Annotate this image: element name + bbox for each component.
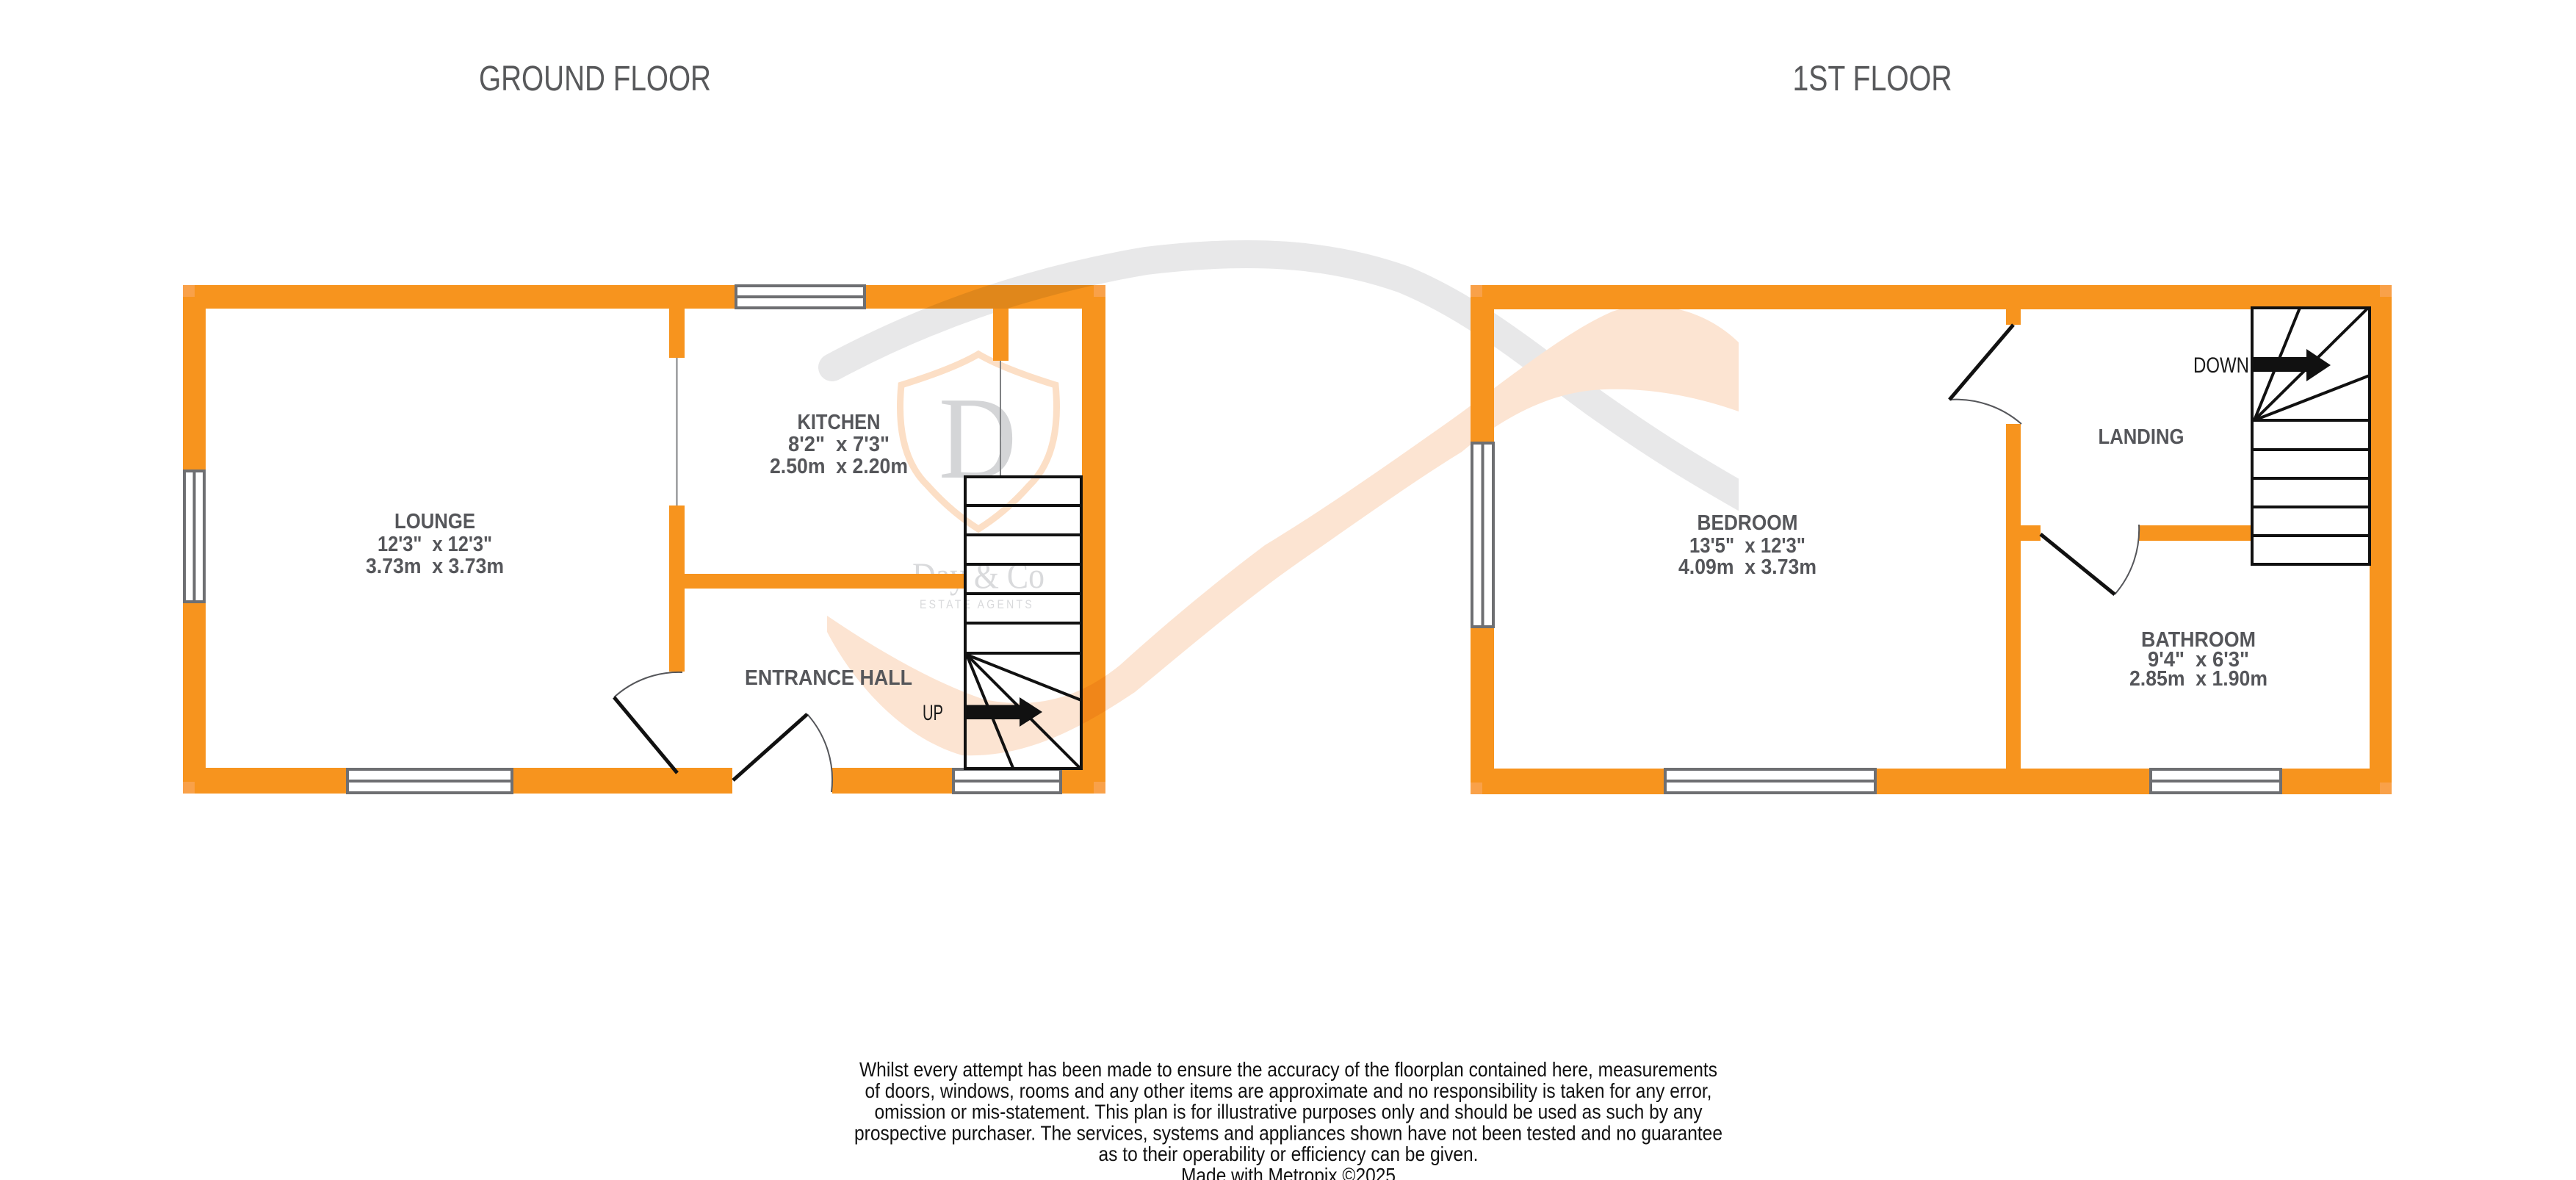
- svg-text:1ST FLOOR: 1ST FLOOR: [1793, 60, 1952, 98]
- svg-text:8'2" x 7'3": 8'2" x 7'3": [788, 433, 890, 456]
- svg-text:13'5" x 12'3": 13'5" x 12'3": [1689, 534, 1805, 558]
- svg-text:ENTRANCE HALL: ENTRANCE HALL: [745, 666, 912, 690]
- svg-text:DOWN: DOWN: [2193, 353, 2249, 378]
- svg-text:Whilst every attempt has been: Whilst every attempt has been made to en…: [859, 1058, 1717, 1081]
- svg-text:Made with Metropix ©2025: Made with Metropix ©2025: [1181, 1164, 1396, 1180]
- svg-text:12'3" x 12'3": 12'3" x 12'3": [378, 533, 492, 556]
- svg-text:2.85m x 1.90m: 2.85m x 1.90m: [2129, 667, 2267, 691]
- svg-text:as to their operability or eff: as to their operability or efficiency ca…: [1099, 1143, 1479, 1165]
- svg-text:BEDROOM: BEDROOM: [1698, 511, 1798, 535]
- svg-text:KITCHEN: KITCHEN: [798, 411, 881, 434]
- svg-text:ESTATE AGENTS: ESTATE AGENTS: [920, 597, 1034, 611]
- svg-text:D: D: [939, 373, 1017, 503]
- svg-text:of doors, windows, rooms and a: of doors, windows, rooms and any other i…: [865, 1079, 1712, 1102]
- svg-text:LOUNGE: LOUNGE: [394, 510, 475, 533]
- svg-text:GROUND FLOOR: GROUND FLOOR: [479, 60, 711, 98]
- svg-text:omission or mis-statement. Thi: omission or mis-statement. This plan is …: [875, 1101, 1703, 1123]
- svg-text:4.09m x 3.73m: 4.09m x 3.73m: [1678, 555, 1816, 579]
- svg-text:UP: UP: [923, 701, 943, 725]
- svg-text:LANDING: LANDING: [2099, 425, 2184, 449]
- svg-text:2.50m x 2.20m: 2.50m x 2.20m: [770, 455, 908, 478]
- svg-text:3.73m x 3.73m: 3.73m x 3.73m: [366, 555, 504, 578]
- svg-text:prospective purchaser. The ser: prospective purchaser. The services, sys…: [854, 1121, 1722, 1144]
